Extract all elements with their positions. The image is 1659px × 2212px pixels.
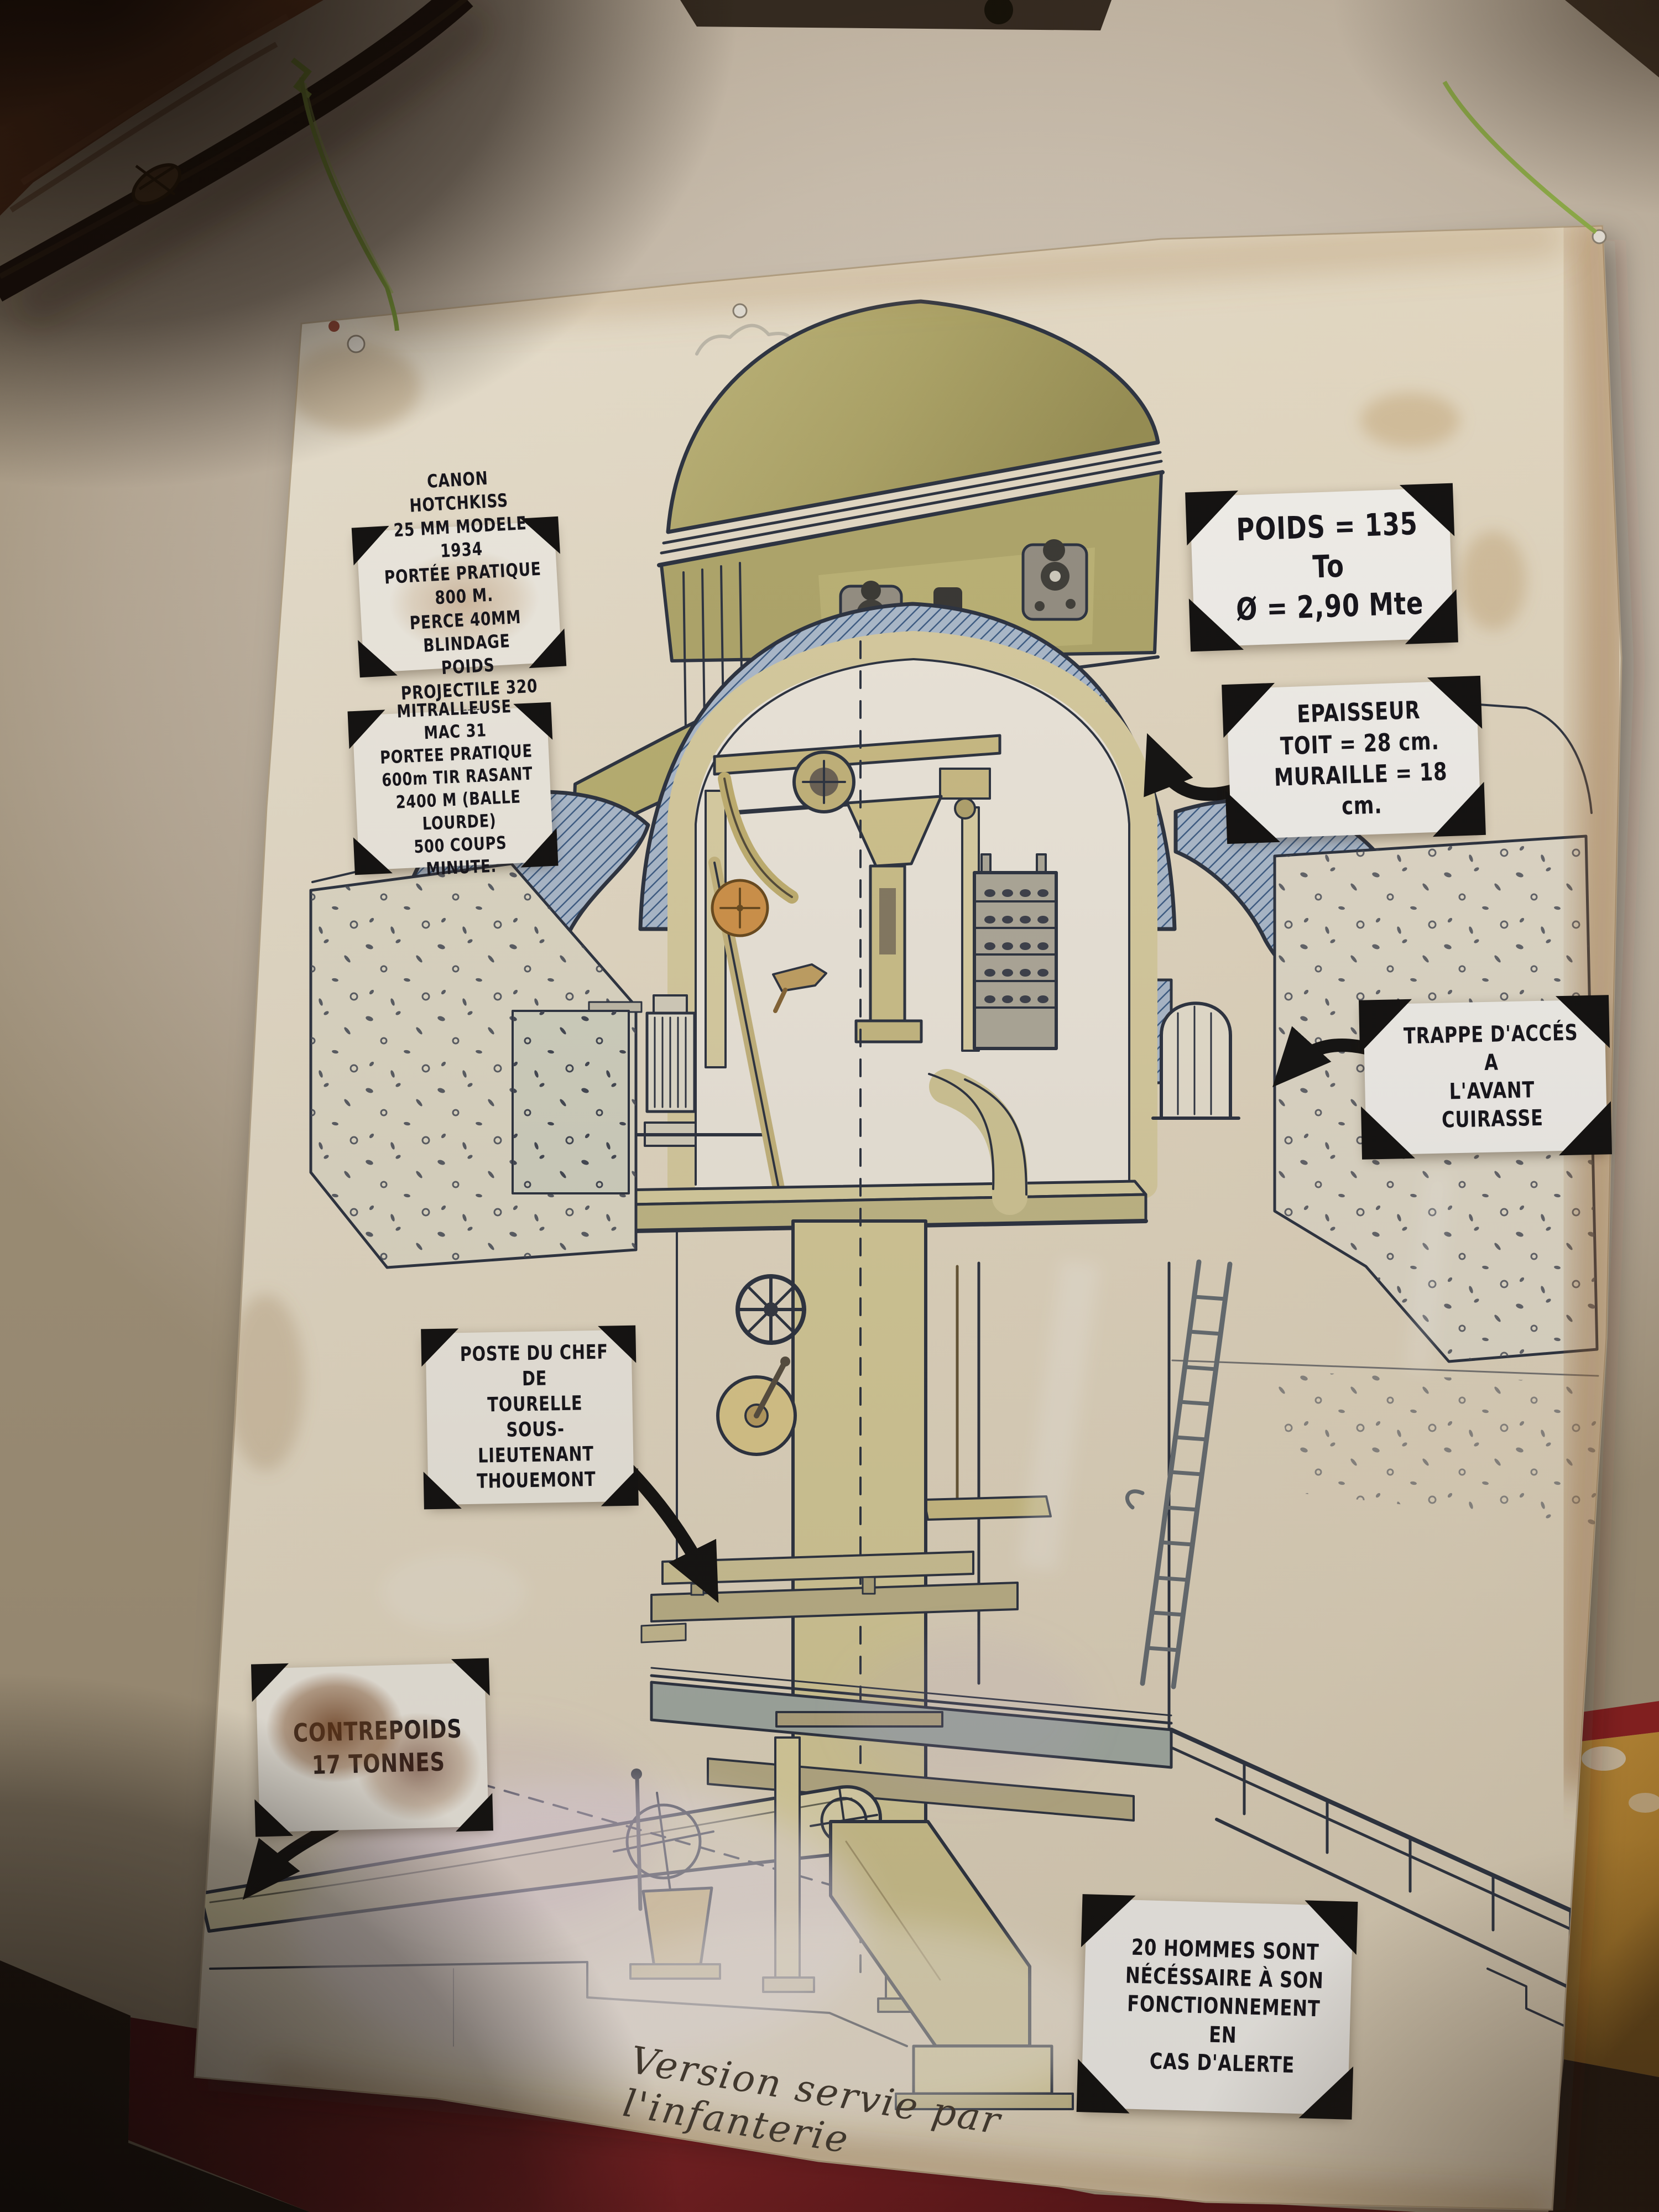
card-contrepoids: CONTREPOIDS 17 TONNES: [255, 1663, 489, 1833]
card-epaisseur-text: EPAISSEUR TOIT = 28 cm. MURAILLE = 18 cm…: [1258, 681, 1463, 838]
card-hommes-text: 20 HOMMES SONT NÉCÉSSAIRE À SON FONCTION…: [1114, 1900, 1333, 2115]
ammo-rack: [974, 854, 1056, 1048]
card-poids-text: POIDS = 135 To Ø = 2,90 Mte: [1222, 488, 1434, 646]
red-pin-icon: [328, 321, 340, 332]
white-pin-icon: [733, 304, 747, 317]
sight-wheel: [712, 880, 768, 936]
card-contrepoids-text: CONTREPOIDS 17 TONNES: [284, 1663, 472, 1832]
white-pin-icon: [348, 336, 364, 352]
green-wire-right: [1444, 82, 1596, 232]
card-poids: POIDS = 135 To Ø = 2,90 Mte: [1190, 488, 1453, 647]
photo-of-turret-poster: CANON HOTCHKISS 25 MM MODELE 1934 PORTÉE…: [0, 0, 1659, 2212]
card-20-hommes: 20 HOMMES SONT NÉCÉSSAIRE À SON FONCTION…: [1081, 1898, 1353, 2115]
card-epaisseur: EPAISSEUR TOIT = 28 cm. MURAILLE = 18 cm…: [1226, 680, 1481, 839]
card-canon-hotchkiss: CANON HOTCHKISS 25 MM MODELE 1934 PORTÉE…: [356, 521, 562, 673]
card-canon-text: CANON HOTCHKISS 25 MM MODELE 1934 PORTÉE…: [381, 522, 547, 672]
card-trappe-text: TRAPPE D'ACCÉS A L'AVANT CUIRASSE: [1394, 1000, 1589, 1154]
card-trappe-acces: TRAPPE D'ACCÉS A L'AVANT CUIRASSE: [1363, 999, 1608, 1155]
card-poste-text: POSTE DU CHEF DE TOURELLE SOUS-LIEUTENAN…: [451, 1330, 619, 1504]
access-door: [1153, 1003, 1239, 1118]
card-mitrailleuse-text: MITRALLEUSE MAC 31 PORTEE PRATIQUE 600m …: [377, 707, 539, 869]
card-poste-du-chef: POSTE DU CHEF DE TOURELLE SOUS-LIEUTENAN…: [425, 1330, 634, 1505]
gun-embrasure-right: [1023, 539, 1087, 619]
elevation-handwheel: [738, 1276, 804, 1343]
card-mitrailleuse-mac31: MITRALLEUSE MAC 31 PORTEE PRATIQUE 600m …: [352, 707, 554, 870]
